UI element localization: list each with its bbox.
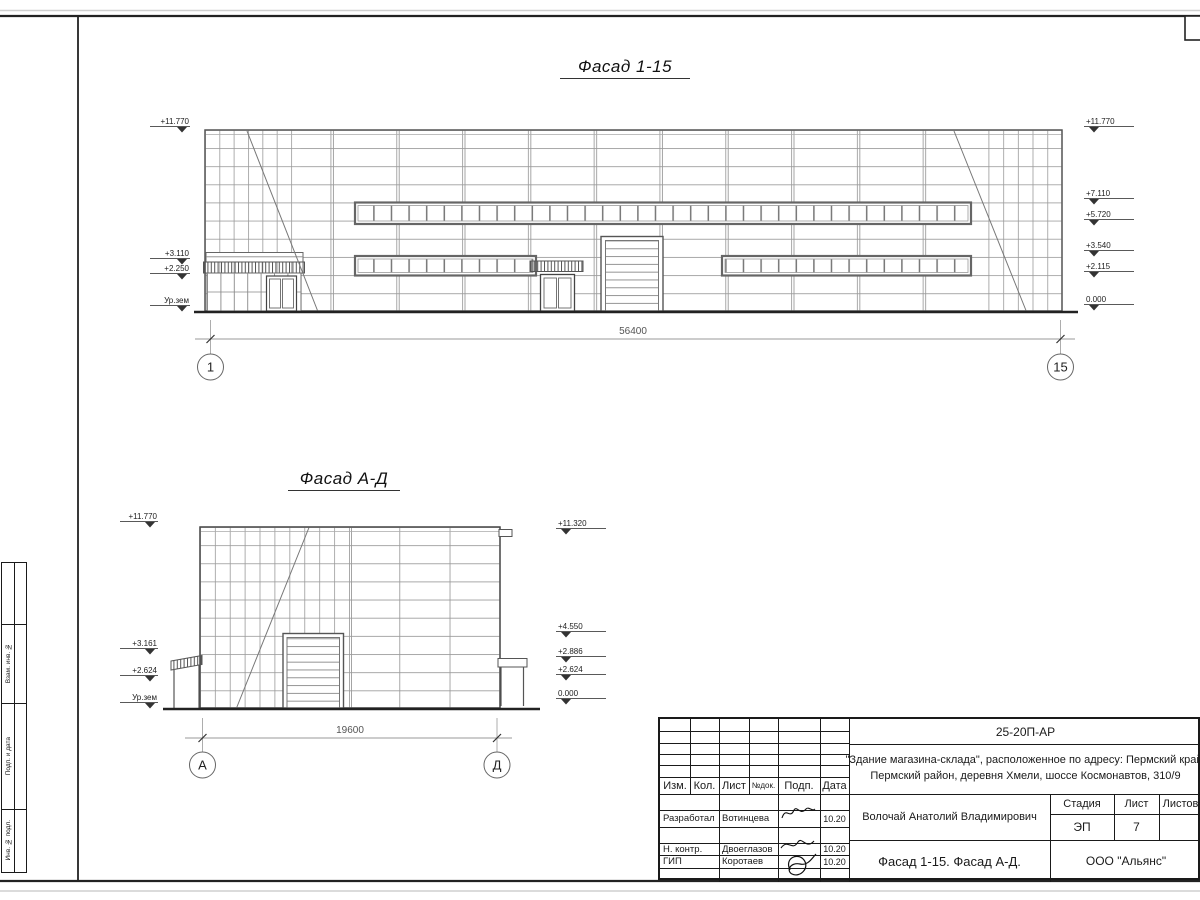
axis-bubble-15: 15 xyxy=(1048,354,1074,380)
storefront-canopy xyxy=(204,262,305,273)
axis-bubble-label: Д xyxy=(493,758,502,773)
stage-value: ЭП xyxy=(1050,814,1114,840)
row-role: Н. контр. xyxy=(660,843,719,855)
axis-bubble-label: 15 xyxy=(1053,360,1067,375)
elevation-mark: 0.000 xyxy=(558,689,579,698)
project-line1: "Здание магазина-склада", расположенное … xyxy=(845,753,1200,769)
row-name: Вотинцева xyxy=(719,810,778,827)
col-header-list: Лист xyxy=(719,777,749,794)
facade-1-15-title: Фасад 1-15 xyxy=(560,57,690,79)
chief-name: Волочай Анатолий Владимирович xyxy=(849,794,1050,840)
window-band-lower-left xyxy=(355,256,536,276)
dimension-56400: 56400 xyxy=(195,320,1075,354)
rollup-gate xyxy=(283,634,344,709)
row-role: Разработал xyxy=(660,810,719,827)
axis-bubble-a: А xyxy=(190,752,216,778)
facade-1-15-drawing: 56400 1 15 +11.770 +3.110 +2.250 xyxy=(150,117,1134,380)
storefront-left xyxy=(204,253,305,312)
glazed-corner-right xyxy=(989,130,1063,311)
col-header-ndok: №док. xyxy=(749,777,778,794)
sheets-label: Листов xyxy=(1159,794,1200,814)
side-stamp-label: Подп. и дата xyxy=(5,737,12,775)
window-band-lower-right xyxy=(722,256,971,276)
elevation-mark: +2.624 xyxy=(558,665,583,674)
elevation-mark: +7.110 xyxy=(1086,189,1111,198)
signature xyxy=(781,840,814,848)
window-band-upper xyxy=(355,203,971,225)
sheet-value: 7 xyxy=(1114,814,1159,840)
stage-label: Стадия xyxy=(1050,794,1114,814)
elevation-mark: Ур.зем xyxy=(132,693,157,702)
elevation-marks-left: +11.770 +3.161 +2.624 Ур.зем xyxy=(120,512,158,709)
elevation-mark: 0.000 xyxy=(1086,295,1107,304)
elevation-mark: +4.550 xyxy=(558,622,583,631)
drawing-title: Фасад 1-15. Фасад А-Д. xyxy=(849,840,1050,882)
company-name: ООО "Альянс" xyxy=(1050,840,1200,882)
col-header-podp: Подп. xyxy=(778,777,820,794)
doc-code: 25-20П-АР xyxy=(849,719,1200,744)
rollup-gate xyxy=(601,237,663,312)
drawing-sheet: 56400 1 15 +11.770 +3.110 +2.250 xyxy=(0,0,1200,900)
signature xyxy=(782,808,815,818)
canopy-left xyxy=(171,656,202,709)
title-block: Изм. Кол. Лист №док. Подп. Дата Разработ… xyxy=(658,717,1200,880)
axis-bubble-1: 1 xyxy=(198,354,224,380)
elevation-marks-left: +11.770 +3.110 +2.250 Ур.зем xyxy=(150,117,190,312)
row-date: 10.20 xyxy=(820,843,849,855)
side-stamp: Взам. инв. № Подп. и дата Инв. № подл. xyxy=(1,562,27,873)
elevation-mark: +11.770 xyxy=(1086,117,1115,126)
elevation-mark: +3.161 xyxy=(132,639,157,648)
dimension-value: 56400 xyxy=(619,326,647,337)
elevation-mark: +2.624 xyxy=(132,666,157,675)
signature xyxy=(789,854,816,875)
sheet-label: Лист xyxy=(1114,794,1159,814)
col-header-kol: Кол. xyxy=(690,777,719,794)
col-header-data: Дата xyxy=(820,777,849,794)
elevation-mark: +3.540 xyxy=(1086,241,1111,250)
sheets-value xyxy=(1159,814,1200,840)
elevation-mark: +11.320 xyxy=(558,519,587,528)
elevation-mark: +2.250 xyxy=(164,264,189,273)
row-date: 10.20 xyxy=(820,810,849,827)
elevation-mark: +5.720 xyxy=(1086,210,1111,219)
storefront-door xyxy=(267,276,297,311)
facade-a-d-title: Фасад А-Д xyxy=(288,469,400,491)
side-stamp-cell: Инв. № подл. xyxy=(2,809,14,872)
project-description: "Здание магазина-склада", расположенное … xyxy=(849,744,1200,794)
side-stamp-label: Взам. инв. № xyxy=(5,643,12,683)
parapet-tab xyxy=(499,530,512,537)
elevation-mark: +11.770 xyxy=(160,117,189,126)
elevation-marks-right: +11.320 +4.550 +2.886 +2.624 0.000 xyxy=(556,519,606,705)
project-line2: Пермский район, деревня Хмели, шоссе Кос… xyxy=(870,769,1180,785)
row-date: 10.20 xyxy=(820,855,849,868)
elevation-mark: +11.770 xyxy=(128,512,157,521)
side-stamp-label: Инв. № подл. xyxy=(5,820,12,861)
col-header-izm: Изм. xyxy=(660,777,690,794)
corner-stamp-box xyxy=(1185,16,1200,40)
panel-grid xyxy=(349,527,500,708)
elevation-mark: +3.110 xyxy=(165,249,190,258)
row-name: Коротаев xyxy=(719,855,778,868)
entrance-canopy xyxy=(530,261,583,272)
dimension-value: 19600 xyxy=(336,725,364,736)
dimension-19600: 19600 xyxy=(185,718,512,752)
axis-bubble-label: 1 xyxy=(207,360,214,375)
canopy-right xyxy=(498,659,527,707)
signatures xyxy=(776,800,820,882)
elevation-marks-right: +11.770 +7.110 +5.720 +3.540 +2.115 0.00… xyxy=(1084,117,1134,311)
elevation-mark: +2.886 xyxy=(558,647,583,656)
side-stamp-cell: Подп. и дата xyxy=(2,703,14,809)
elevation-mark: Ур.зем xyxy=(164,296,189,305)
row-role: ГИП xyxy=(660,855,719,868)
facade-a-d-drawing: 19600 А Д +11.770 +3.161 +2.624 Ур.зе xyxy=(120,512,606,778)
row-name: Двоеглазов xyxy=(719,843,778,855)
axis-bubble-label: А xyxy=(198,758,207,773)
elevation-mark: +2.115 xyxy=(1086,262,1111,271)
axis-bubble-d: Д xyxy=(484,752,510,778)
side-stamp-cell: Взам. инв. № xyxy=(2,624,14,703)
